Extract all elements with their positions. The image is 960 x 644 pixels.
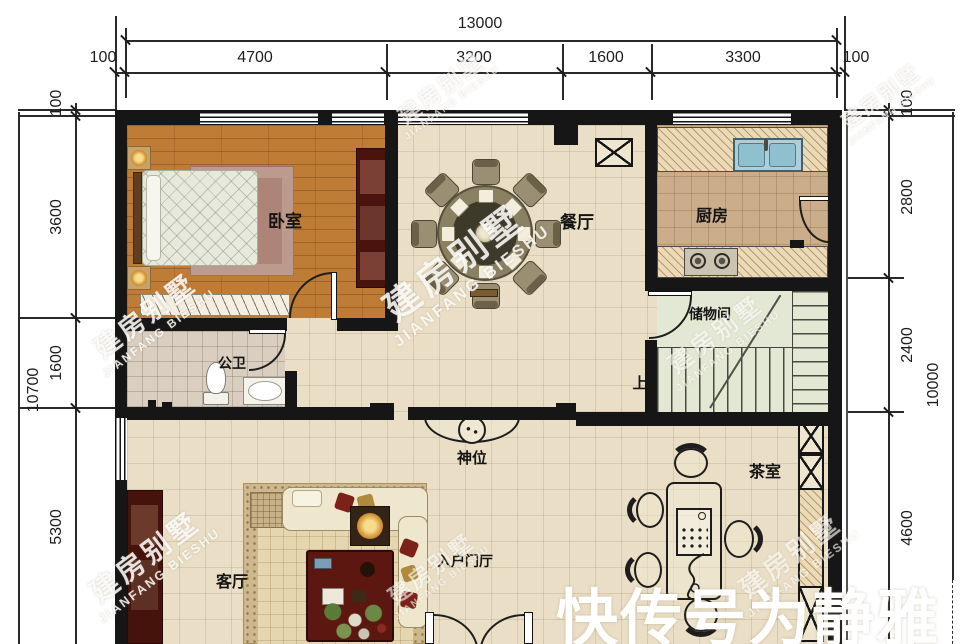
floor-plan-canvas: 13000 100 4700 3200 1600 3300 100 10700 … bbox=[0, 0, 960, 644]
dining-chair bbox=[411, 220, 437, 248]
label-bedroom: 卧室 bbox=[245, 207, 325, 232]
dim-right-total: 10000 bbox=[924, 345, 944, 425]
table-centerpiece bbox=[475, 223, 495, 243]
dim-line bbox=[75, 103, 77, 644]
wall-kitchen-bottom bbox=[645, 278, 828, 291]
tea-chair bbox=[724, 520, 754, 558]
bedroom-door-leaf bbox=[331, 272, 337, 320]
dim-left-5300: 5300 bbox=[47, 497, 67, 557]
label-living: 客厅 bbox=[192, 568, 272, 592]
tv-cabinet-panel bbox=[131, 560, 158, 610]
bathroom-door-leaf bbox=[249, 329, 286, 334]
wall-bedroom-bottom bbox=[337, 318, 398, 331]
napkin bbox=[517, 226, 531, 242]
watermark-en: JIANFANG BIESHU bbox=[837, 68, 947, 154]
window-dining-top bbox=[398, 112, 528, 124]
dim-right-2400: 2400 bbox=[898, 315, 918, 375]
dim-left-100: 100 bbox=[47, 83, 67, 123]
stove-burner bbox=[690, 253, 706, 269]
dim-top-3300: 3300 bbox=[713, 48, 773, 68]
dim-ext-line bbox=[18, 317, 115, 319]
bed-pillow bbox=[146, 175, 161, 261]
washbasin-bowl bbox=[248, 381, 282, 401]
dim-line-dashed bbox=[952, 580, 953, 644]
label-stairs-up: 上 bbox=[626, 372, 654, 393]
tea-chair bbox=[674, 448, 708, 478]
hall-step bbox=[470, 289, 498, 297]
stair-treads-upper bbox=[792, 291, 828, 412]
label-entry-hall: 入户门厅 bbox=[405, 551, 525, 571]
dim-top-total: 13000 bbox=[430, 14, 530, 34]
stove-burner bbox=[714, 253, 730, 269]
side-table bbox=[250, 492, 286, 528]
flower-arrangement bbox=[318, 598, 392, 644]
kitchen-counter-bottom bbox=[657, 246, 828, 278]
lamp-glow bbox=[131, 150, 147, 166]
dim-right-4600: 4600 bbox=[898, 498, 918, 558]
wall-pillar bbox=[370, 403, 394, 420]
window-bedroom-top bbox=[200, 112, 318, 124]
dim-line bbox=[115, 72, 842, 74]
tea-chair bbox=[636, 492, 664, 528]
wall-kitchen-left bbox=[645, 125, 657, 290]
wardrobe-shelf bbox=[360, 160, 386, 194]
dim-top-4700: 4700 bbox=[225, 48, 285, 68]
label-bathroom: 公卫 bbox=[197, 353, 267, 373]
table-item bbox=[314, 558, 332, 569]
dim-top-1600: 1600 bbox=[576, 48, 636, 68]
wardrobe-shelf bbox=[360, 206, 386, 240]
dim-top-3200: 3200 bbox=[444, 48, 504, 68]
sink-faucet bbox=[764, 139, 768, 151]
bay-window-x bbox=[798, 586, 824, 642]
tea-tray-dots bbox=[680, 526, 708, 552]
sink-basin bbox=[769, 143, 796, 167]
sink-basin bbox=[738, 143, 765, 167]
napkin bbox=[478, 265, 494, 279]
entry-door-leaf bbox=[425, 612, 434, 644]
wall-left bbox=[115, 110, 127, 644]
wall-right bbox=[828, 110, 842, 644]
window-kitchen-top bbox=[673, 112, 791, 124]
wall-living-top bbox=[408, 407, 558, 420]
dim-left-3600: 3600 bbox=[47, 187, 67, 247]
lamp-glow bbox=[357, 513, 383, 539]
sofa-pillow bbox=[400, 591, 419, 610]
napkin bbox=[478, 189, 494, 203]
window-top-small bbox=[332, 112, 384, 124]
dim-top-100-right: 100 bbox=[839, 48, 873, 68]
dim-line bbox=[952, 112, 954, 580]
drying-mat bbox=[140, 294, 290, 316]
tv-cabinet-panel bbox=[131, 505, 158, 545]
lamp-glow bbox=[131, 270, 147, 286]
tea-cup bbox=[698, 512, 706, 520]
tea-chair bbox=[684, 598, 718, 632]
storage-door-leaf bbox=[648, 291, 692, 296]
wardrobe-shelf bbox=[360, 252, 386, 280]
shrine-symbol bbox=[458, 416, 486, 444]
bed-headboard bbox=[133, 172, 142, 264]
sofa-cushion bbox=[292, 490, 322, 507]
door-jamb bbox=[790, 240, 804, 248]
window-living-left bbox=[115, 418, 127, 480]
label-shrine: 神位 bbox=[432, 447, 512, 468]
dim-right-100: 100 bbox=[898, 83, 918, 123]
kitchen-door-leaf bbox=[799, 196, 829, 201]
label-dining: 餐厅 bbox=[537, 208, 617, 233]
wall-pillar bbox=[556, 403, 576, 420]
dim-ext-line bbox=[846, 411, 904, 413]
table-item bbox=[360, 562, 375, 577]
wall-living-top bbox=[115, 407, 370, 420]
dining-chair bbox=[472, 159, 500, 185]
dim-top-100-left: 100 bbox=[86, 48, 120, 68]
label-tea-room: 茶室 bbox=[725, 458, 805, 482]
label-kitchen: 厨房 bbox=[672, 202, 752, 226]
dim-right-2800: 2800 bbox=[898, 167, 918, 227]
dim-left-total: 10700 bbox=[24, 350, 44, 430]
wall-bedroom-right bbox=[385, 125, 398, 318]
dim-line bbox=[125, 40, 837, 42]
dim-line bbox=[18, 112, 20, 644]
entry-door-leaf bbox=[524, 612, 533, 644]
dim-left-1600: 1600 bbox=[47, 333, 67, 393]
dim-ext-line bbox=[846, 277, 904, 279]
napkin bbox=[441, 226, 455, 242]
stair-treads-lower bbox=[657, 347, 792, 412]
wall-right-outline bbox=[846, 112, 848, 644]
dim-line bbox=[888, 103, 890, 644]
tea-chair bbox=[634, 552, 662, 588]
label-storage: 储物间 bbox=[660, 304, 760, 324]
flue-shaft bbox=[595, 138, 633, 167]
wall-stair-bottom bbox=[576, 412, 828, 426]
wall-flue-pillar bbox=[554, 125, 578, 145]
